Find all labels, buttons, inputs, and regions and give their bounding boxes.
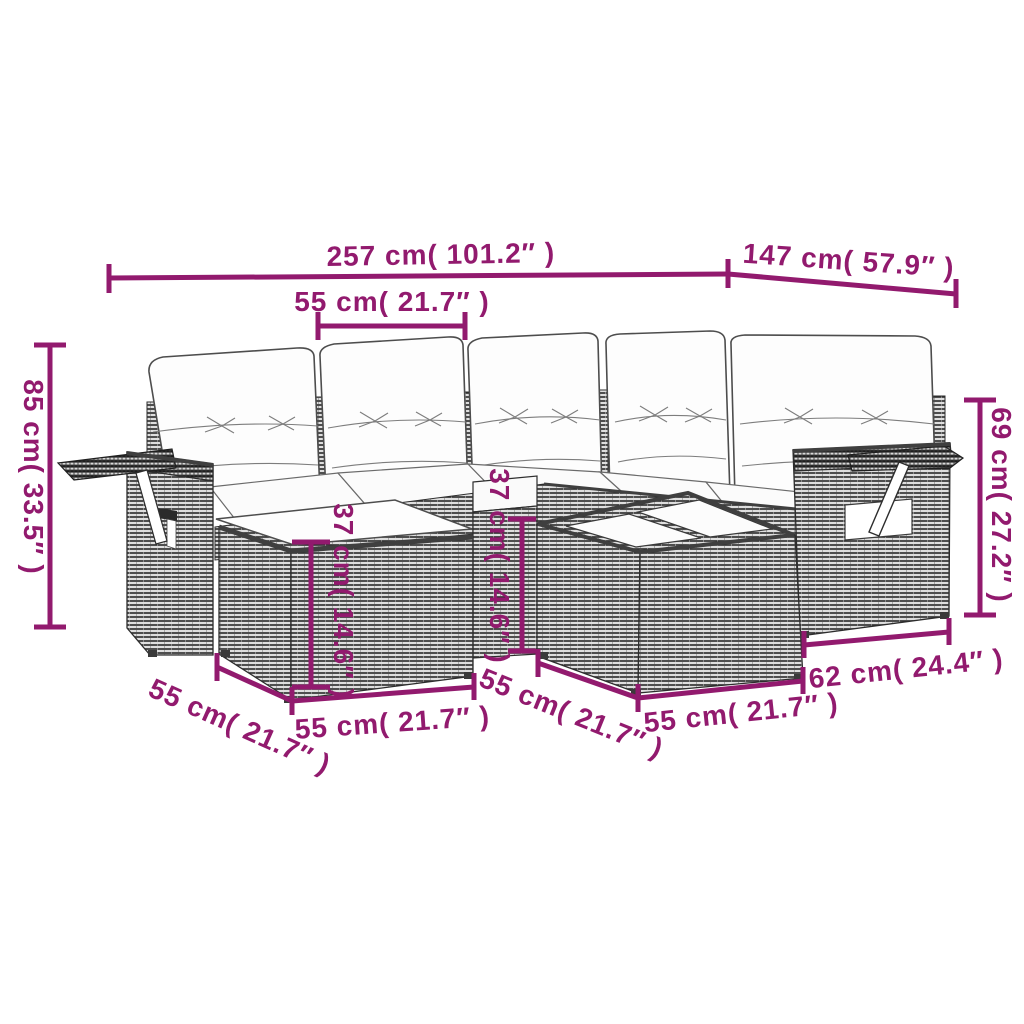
svg-text:55 cm( 21.7″ ): 55 cm( 21.7″ ) [294,700,491,745]
svg-text:37 cm( 14.6″ ): 37 cm( 14.6″ ) [328,503,359,699]
svg-text:69 cm( 27.2″ ): 69 cm( 27.2″ ) [986,407,1017,603]
svg-text:37 cm( 14.6″ ): 37 cm( 14.6″ ) [484,468,515,664]
svg-text:257 cm( 101.2″ ): 257 cm( 101.2″ ) [326,237,555,272]
svg-text:55 cm( 21.7″ ): 55 cm( 21.7″ ) [294,286,490,317]
svg-text:85 cm( 33.5″ ): 85 cm( 33.5″ ) [18,379,49,575]
svg-text:62 cm( 24.4″ ): 62 cm( 24.4″ ) [807,643,1005,694]
